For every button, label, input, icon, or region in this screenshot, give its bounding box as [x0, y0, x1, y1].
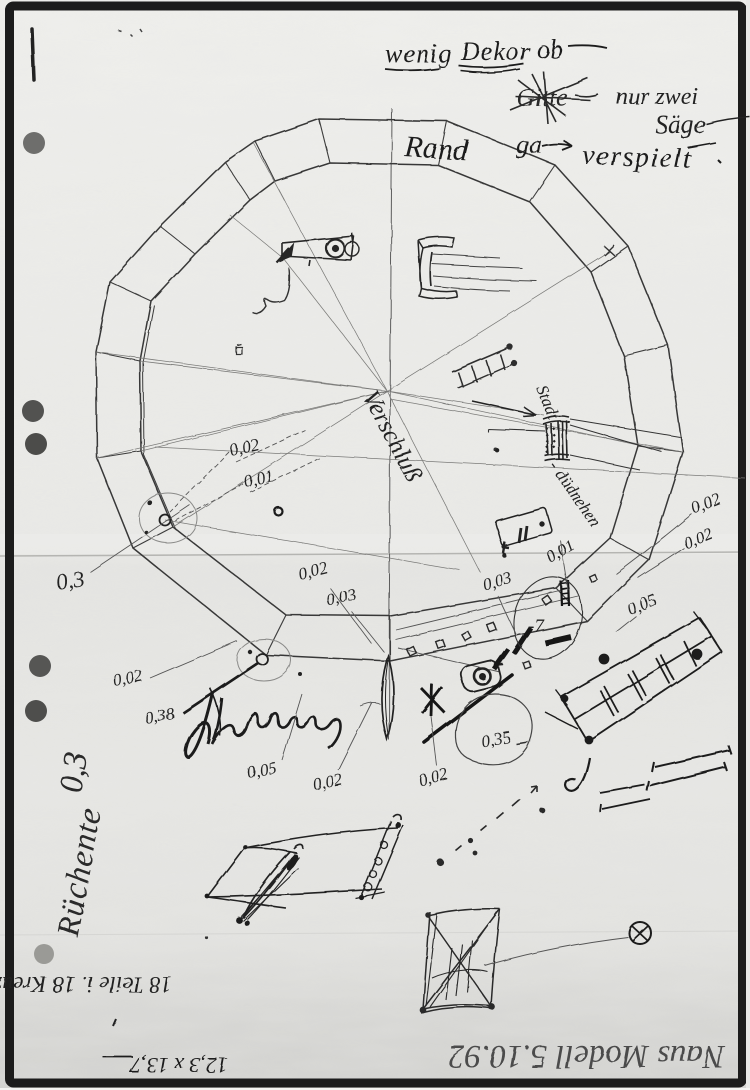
svg-text:12,3 x 13,7: 12,3 x 13,7	[129, 1053, 228, 1078]
svg-text:Dekor: Dekor	[460, 37, 531, 66]
svg-text:Naus Modell 5.10.92: Naus Modell 5.10.92	[448, 1038, 726, 1074]
svg-text:nur zwei: nur zwei	[616, 84, 698, 110]
svg-text:wenig: wenig	[385, 39, 452, 68]
svg-text:verspielt: verspielt	[582, 140, 693, 175]
svg-text:Rand: Rand	[403, 130, 470, 167]
svg-text:ga: ga	[516, 130, 542, 159]
svg-text:0,3: 0,3	[55, 566, 86, 595]
svg-text:-7: -7	[528, 616, 545, 637]
svg-text:0,3: 0,3	[54, 750, 94, 795]
svg-text:18 Teile i. 18 Kreuzgl.: 18 Teile i. 18 Kreuzgl.	[0, 972, 172, 997]
svg-text:ob: ob	[537, 35, 563, 64]
svg-text:Säge: Säge	[655, 110, 706, 139]
